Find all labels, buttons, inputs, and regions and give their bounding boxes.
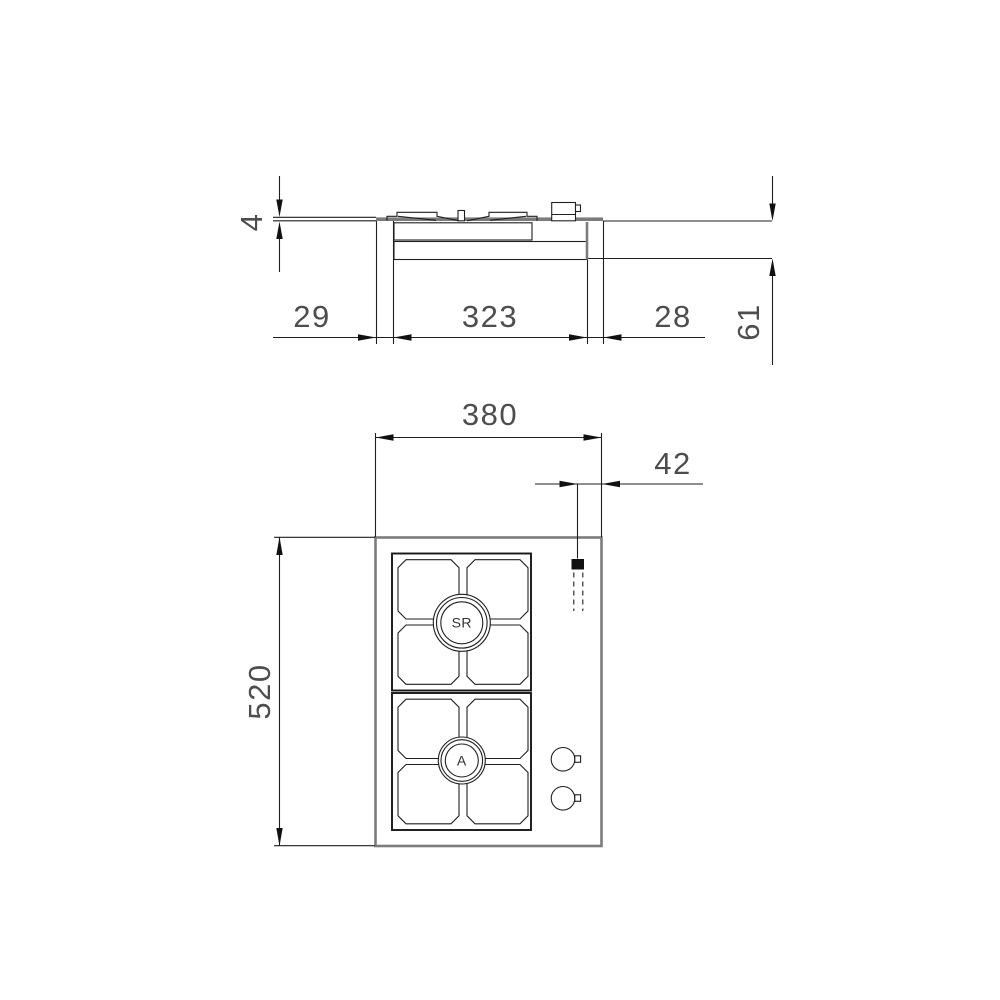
dim-overall-depth: 520 <box>242 663 277 719</box>
dim4-arrow-up <box>276 222 282 240</box>
drawing-svg: 4 61 29 323 28 <box>0 0 1000 1000</box>
dim-left-overhang: 29 <box>293 299 330 334</box>
dim-right-overhang: 28 <box>654 299 691 334</box>
knob-front-tab <box>575 795 581 802</box>
knob-rear-tab <box>575 756 581 763</box>
top-view: SR A 380 42 520 <box>242 397 703 846</box>
gas-inlet-marker <box>572 559 585 570</box>
chain-arrow-1 <box>358 334 376 340</box>
dim520-arrow-top <box>276 537 282 555</box>
hob-body-upper-box <box>394 223 532 240</box>
dim61-arrow-down <box>769 204 775 222</box>
side-view: 4 61 29 323 28 <box>234 176 776 365</box>
chain-arrow-2 <box>394 334 412 340</box>
knob-front-top-view <box>551 787 575 811</box>
chain-arrow-4 <box>604 334 622 340</box>
dim-cutout-width: 323 <box>462 299 518 334</box>
knob-profile <box>552 203 576 221</box>
dim380-arrow-left <box>376 434 394 440</box>
dim-plate-thickness: 4 <box>234 213 269 232</box>
dim-overall-width: 380 <box>462 397 518 432</box>
dim4-arrow-down <box>276 200 282 218</box>
dim42-arrow-left <box>560 481 578 487</box>
hob-body-lower-box <box>394 242 587 260</box>
knob-rear-top-view <box>551 748 575 772</box>
dim520-arrow-bottom <box>276 828 282 846</box>
dim-depth-below-worktop: 61 <box>731 303 766 340</box>
front-burner-label: A <box>457 752 467 768</box>
dim42-arrow-right <box>602 481 620 487</box>
knob-tab-profile <box>576 205 581 212</box>
technical-drawing-canvas: 4 61 29 323 28 <box>0 0 1000 1000</box>
dim380-arrow-right <box>584 434 602 440</box>
rear-burner-label: SR <box>452 615 472 631</box>
dim61-arrow-up <box>769 259 775 277</box>
dim-gas-offset: 42 <box>654 446 691 481</box>
igniter-profile <box>458 211 465 221</box>
chain-arrow-3 <box>569 334 587 340</box>
